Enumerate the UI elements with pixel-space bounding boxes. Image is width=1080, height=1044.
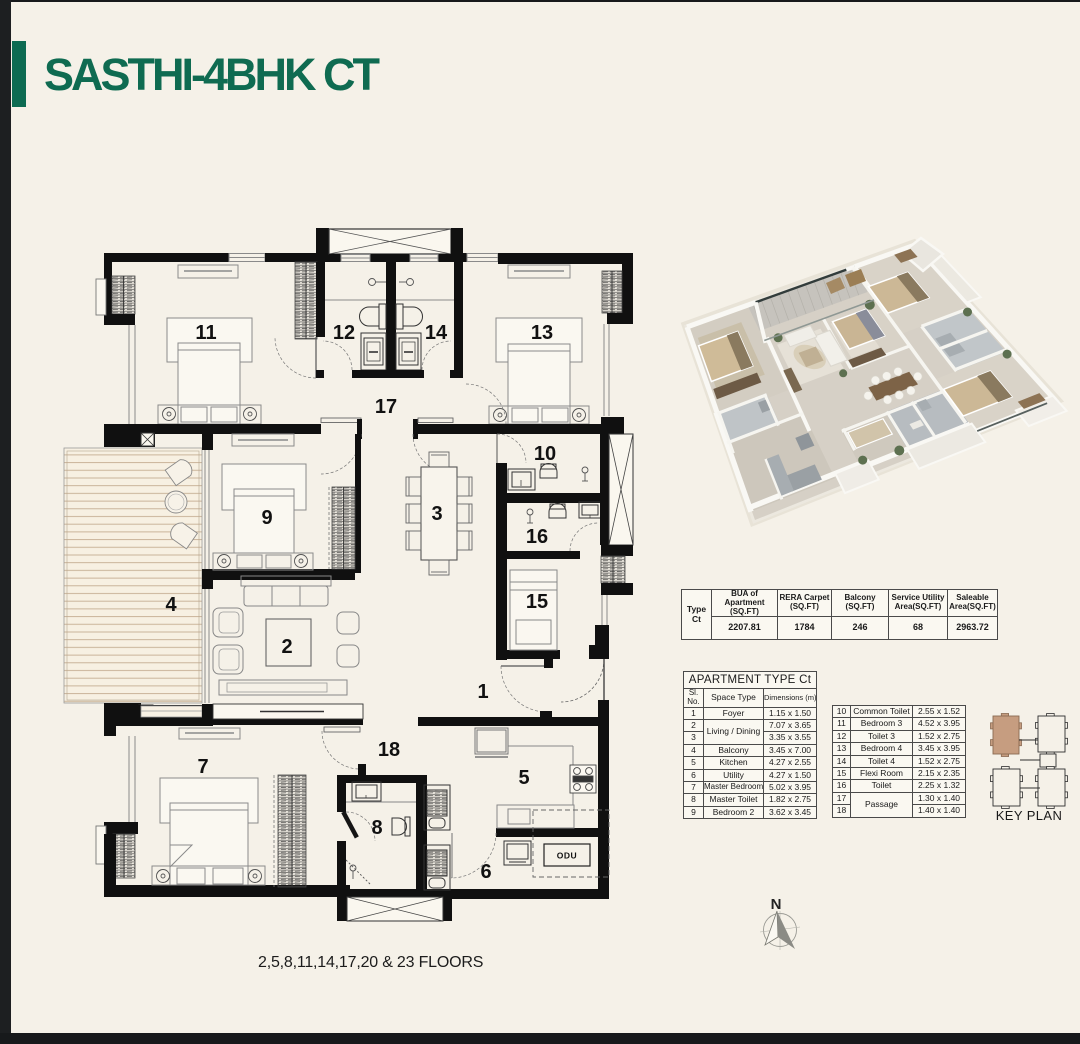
svg-text:8: 8 [371, 817, 382, 839]
svg-text:N: N [771, 896, 782, 913]
svg-text:17: 17 [375, 396, 397, 418]
svg-text:9: 9 [261, 507, 272, 529]
svg-text:ODU: ODU [557, 851, 577, 861]
svg-text:12: 12 [333, 322, 355, 344]
svg-text:2: 2 [281, 636, 292, 658]
svg-text:6: 6 [480, 861, 491, 883]
svg-text:15: 15 [526, 591, 548, 613]
svg-text:7: 7 [197, 756, 208, 778]
svg-text:11: 11 [195, 322, 216, 344]
svg-text:16: 16 [526, 526, 548, 548]
svg-text:18: 18 [378, 739, 400, 761]
svg-text:3: 3 [431, 503, 442, 525]
svg-text:1: 1 [477, 681, 488, 703]
svg-text:14: 14 [425, 322, 448, 344]
svg-text:10: 10 [534, 443, 556, 465]
svg-text:KEY PLAN: KEY PLAN [996, 808, 1063, 823]
svg-text:5: 5 [518, 767, 529, 789]
svg-text:13: 13 [531, 322, 553, 344]
svg-text:4: 4 [165, 594, 177, 616]
